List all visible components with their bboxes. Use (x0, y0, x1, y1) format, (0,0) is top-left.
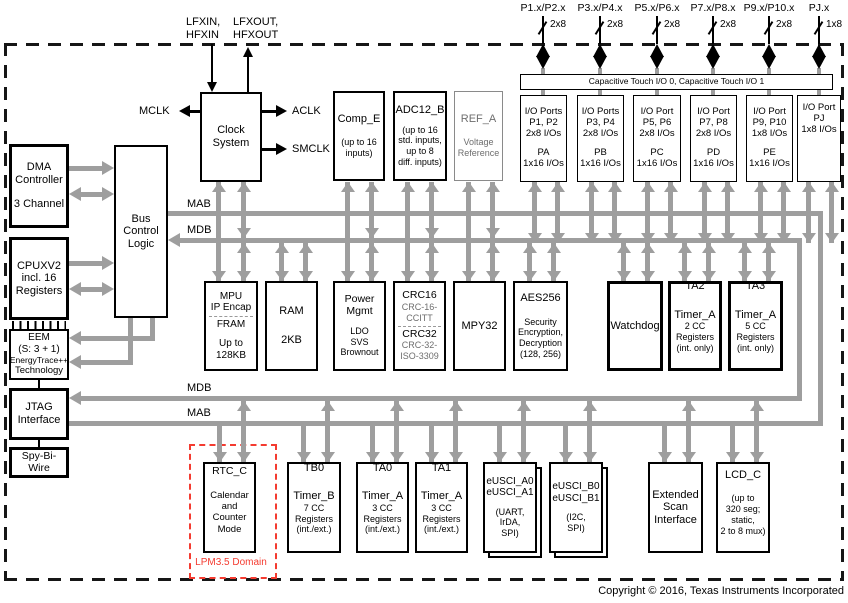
adc-sub1: (up to 16 (402, 125, 438, 136)
bus-arrowhead (237, 243, 251, 253)
lcd-sub2: 320 seg; (726, 504, 761, 515)
ta0-sub3: Registers (363, 514, 401, 525)
lfxin-down-arrowhead (207, 82, 217, 92)
bus-arrowhead (641, 243, 655, 253)
mpu-title: MPU (220, 291, 242, 302)
dma-line1: DMA (27, 161, 51, 174)
eem-feeder1-arrowhead (69, 331, 81, 345)
ref-sub1: Voltage (463, 137, 493, 148)
ram-size: 2KB (281, 334, 302, 347)
rtc-sub3: Counter (213, 512, 247, 523)
block-jtag-interface: JTAG Interface (9, 388, 69, 440)
esi-line1: Extended (652, 489, 698, 502)
block-diagram: MAB MDB MDB MAB P1.x/P2.x 2x8 P3.x/P4.x … (0, 0, 848, 603)
eusci-b-sub2: SPI) (567, 523, 585, 534)
clock-line1: Clock (217, 124, 245, 137)
io5-l3: 1x8 I/Os (801, 125, 836, 136)
block-rtc-c: RTC_C Calendar and Counter Mode (203, 462, 256, 553)
cpu-bus2-arrowhead-left (69, 282, 81, 296)
lpm35-domain-label: LPM3.5 Domain (189, 557, 273, 568)
ta3-sub4: (int. only) (737, 343, 774, 354)
bus-arrowhead (698, 233, 712, 243)
crc32-title: CRC32 (402, 329, 436, 341)
eusci-b1-title: eUSCI_B1 (552, 493, 599, 504)
bus-arrowhead (486, 228, 500, 238)
mpu-ipencap: IP Encap (211, 302, 251, 313)
block-mpu-fram: MPU IP Encap FRAM Up to 128KB (204, 281, 258, 371)
bus-arrowhead (365, 228, 379, 238)
lcd-sub4: 2 to 8 mux) (720, 526, 765, 537)
lfxout-line (247, 57, 249, 92)
rtc-sub1: Calendar (210, 490, 249, 501)
io3-l3: 2x8 I/Os (696, 129, 731, 140)
io2-l5: 1x16 I/Os (637, 159, 678, 170)
bus-arrowhead (237, 271, 251, 281)
aclk-line (262, 110, 277, 113)
block-power-mgmt: Power Mgmt LDO SVS Brownout (333, 281, 386, 371)
block-lcd-c: LCD_C (up to 320 seg; static, 2 to 8 mux… (716, 462, 770, 553)
pmm-sub2: SVS (350, 337, 368, 348)
aes-title: AES256 (520, 292, 560, 305)
esi-line3: Interface (654, 514, 697, 527)
pmm-sub3: Brownout (340, 347, 378, 358)
rtc-sub4: Mode (218, 524, 242, 535)
bus-arrowhead (617, 271, 631, 281)
bus-arrowhead (641, 182, 655, 192)
bus-arrowhead (449, 401, 463, 411)
bus-width-label: 2x8 (720, 19, 736, 30)
bus-arrowhead (802, 233, 816, 243)
block-clock-system: Clock System (200, 92, 262, 182)
clock-line2: System (213, 137, 250, 150)
eusci-b-sub1: (I2C, (566, 512, 586, 523)
ta2-sub2: 2 CC (685, 321, 706, 332)
adc-sub2: std. inputs, (398, 135, 442, 146)
bus-width-label: 2x8 (607, 19, 623, 30)
tb0-sub1: Timer_B (293, 490, 334, 503)
bus-arrowhead (777, 182, 791, 192)
block-mpy32: MPY32 (453, 281, 506, 371)
block-io-p1p2: I/O Ports P1, P2 2x8 I/Os PA 1x16 I/Os (520, 95, 567, 182)
bus-arrowhead (341, 182, 355, 192)
bus-arrowhead (583, 452, 597, 462)
block-bus-control-logic: Bus Control Logic (114, 145, 168, 318)
bus-arrowhead (299, 243, 313, 253)
bus-arrowhead (617, 243, 631, 253)
mpu-fram: FRAM (217, 319, 245, 330)
bus-arrowhead (425, 182, 439, 192)
eusci-a-sub3: SPI) (501, 528, 519, 539)
lcd-title: LCD_C (725, 469, 761, 482)
bus-arrowhead (365, 271, 379, 281)
pmm-sub1: LDO (350, 326, 369, 337)
bus-arrowhead (425, 243, 439, 253)
eem-line3: EnergyTrace++ (10, 355, 68, 365)
bus-arrowhead (726, 452, 740, 462)
bus-arrowhead (425, 228, 439, 238)
mpu-sub2: 128KB (216, 350, 246, 361)
aes-sub4: (128, 256) (520, 349, 561, 360)
crc16-sub2: CCITT (406, 313, 433, 324)
block-crc: CRC16 CRC-16- CCITT CRC32 CRC-32- ISO-33… (393, 281, 446, 371)
bus-arrowhead (641, 271, 655, 281)
mdb-upper-label: MDB (187, 224, 211, 236)
rtc-sub2: and (222, 501, 238, 512)
eusci-a-sub2: IrDA, (500, 517, 521, 528)
lfxin-label-line1: LFXIN, (186, 16, 220, 28)
port-label: PJ.x (787, 2, 848, 14)
ta1-sub3: Registers (422, 514, 460, 525)
mclk-line (189, 110, 200, 113)
bus-arrowhead (551, 233, 565, 243)
ta1-sub2: 3 CC (431, 503, 452, 514)
eem-feeder2-line (81, 360, 133, 365)
block-io-p5p6: I/O Port P5, P6 2x8 I/Os PC 1x16 I/Os (633, 95, 681, 182)
bus-arrowhead (493, 452, 507, 462)
mab-lower-bus (69, 421, 823, 426)
bus-arrowhead (825, 233, 839, 243)
dma-bus2-arrowhead-left (69, 187, 81, 201)
block-ta2: TA2 Timer_A 2 CC Registers (int. only) (668, 281, 722, 371)
port-label: P1.x/P2.x (511, 2, 575, 14)
bus-arrowhead (366, 452, 380, 462)
bus-arrowhead (551, 182, 565, 192)
cpu-eem-hatch (12, 321, 66, 329)
crc32-sub2: ISO-3309 (400, 351, 439, 362)
eusci-b0-title: eUSCI_B0 (552, 481, 599, 492)
ta0-sub1: Timer_A (362, 490, 403, 503)
aclk-arrowhead (276, 105, 287, 117)
bus-arrowhead (449, 452, 463, 462)
bus-arrowhead (275, 271, 289, 281)
bus-arrowhead (321, 452, 335, 462)
block-ta1: TA1 Timer_A 3 CC Registers (int./ext.) (415, 462, 468, 553)
smclk-line (262, 148, 277, 151)
mab-lower-label: MAB (187, 407, 211, 419)
cpu-line3: Registers (16, 285, 62, 298)
sbw-line1: Spy-Bi- (22, 451, 56, 463)
io4-l5: 1x16 I/Os (749, 159, 790, 170)
bus-arrowhead (825, 182, 839, 192)
block-spy-bi-wire: Spy-Bi- Wire (9, 447, 69, 478)
bus-arrowhead (523, 271, 537, 281)
bus-arrowhead (721, 233, 735, 243)
ta1-sub1: Timer_A (421, 490, 462, 503)
port-down-arrowhead (536, 56, 550, 69)
block-comp-e: Comp_E (up to 16 inputs) (333, 91, 385, 181)
mpy-title: MPY32 (461, 320, 497, 333)
lfxin-line (211, 44, 213, 82)
mdb-upper-arrowhead (168, 233, 180, 247)
comp-sub1: (up to 16 (341, 137, 377, 148)
eem-jtag-link (38, 380, 40, 388)
mpu-sub1: Up to (219, 338, 243, 349)
port-down-arrowhead (650, 56, 664, 69)
crc16-title: CRC16 (402, 290, 436, 302)
bus-connector (405, 182, 410, 281)
block-ram: RAM 2KB (265, 281, 318, 371)
ta1-title: TA1 (432, 462, 451, 475)
bus-arrowhead (523, 243, 537, 253)
bus-arrowhead (401, 271, 415, 281)
bus-arrowhead (237, 182, 251, 192)
bus-arrowhead (682, 452, 696, 462)
ta3-title: TA3 (746, 280, 765, 293)
bus-arrowhead (486, 271, 500, 281)
pmm-title1: Power (345, 294, 375, 306)
bus-arrowhead (738, 243, 752, 253)
bus-arrowhead (754, 233, 768, 243)
bus-arrowhead (462, 182, 476, 192)
block-io-p7p8: I/O Port P7, P8 2x8 I/Os PD 1x16 I/Os (690, 95, 737, 182)
dma-line3: 3 Channel (14, 198, 64, 211)
port-label: P7.x/P8.x (681, 2, 745, 14)
bus-arrowhead (462, 271, 476, 281)
bus-arrowhead (664, 182, 678, 192)
cpu-line2: incl. 16 (22, 272, 57, 285)
comp-sub2: inputs) (345, 148, 372, 159)
eusci-a1-title: eUSCI_A1 (486, 487, 533, 498)
bus-arrowhead (401, 182, 415, 192)
lcd-sub3: static, (731, 515, 755, 526)
crc-divider (398, 326, 441, 327)
bus-arrowhead (425, 452, 439, 462)
bus-arrowhead (528, 233, 542, 243)
ta1-sub4: (int./ext.) (424, 524, 459, 535)
crc16-sub1: CRC-16- (402, 302, 438, 313)
io1-l5: 1x16 I/Os (580, 159, 621, 170)
copyright-text: Copyright © 2016, Texas Instruments Inco… (480, 585, 844, 597)
cpu-bus-arrowhead (102, 256, 114, 270)
eem-feeder2-arrowhead (69, 355, 81, 369)
block-cpu: CPUXV2 incl. 16 Registers (9, 237, 69, 320)
tb0-sub3: Registers (295, 514, 333, 525)
bus-arrowhead (702, 243, 716, 253)
bus-arrowhead (299, 271, 313, 281)
wdt-title: Watchdog (610, 320, 659, 333)
ta0-sub2: 3 CC (372, 503, 393, 514)
crc32-sub1: CRC-32- (402, 340, 438, 351)
bus-arrowhead (547, 243, 561, 253)
bus-arrowhead (608, 233, 622, 243)
io3-l5: 1x16 I/Os (693, 159, 734, 170)
block-ta3: TA3 Timer_A 5 CC Registers (int. only) (728, 281, 783, 371)
ta0-title: TA0 (373, 462, 392, 475)
mab-right-vertical (818, 211, 823, 426)
eem-line2: (S: 3 + 1) (18, 344, 59, 355)
bus-arrowhead (750, 401, 764, 411)
mdb-lower-label: MDB (187, 382, 211, 394)
dma-line2: Controller (15, 174, 63, 187)
block-dma-controller: DMA Controller 3 Channel (9, 144, 69, 228)
sbw-line2: Wire (28, 463, 50, 475)
ta2-sub1: Timer_A (674, 309, 715, 322)
jtag-line2: Interface (18, 414, 61, 427)
bus-arrowhead (762, 243, 776, 253)
io1-l3: 2x8 I/Os (583, 129, 618, 140)
bus-arrowhead (237, 452, 251, 462)
bus-connector (345, 182, 350, 281)
bus-arrowhead (517, 452, 531, 462)
chip-border-bottom (4, 578, 842, 581)
bus-arrowhead (213, 452, 227, 462)
bus-arrowhead (486, 182, 500, 192)
bus-arrowhead (698, 182, 712, 192)
mdb-right-vertical (797, 238, 802, 401)
block-eusci-b: eUSCI_B0 eUSCI_B1 (I2C, SPI) (549, 462, 603, 553)
adc-title: ADC12_B (396, 104, 445, 117)
bus-arrowhead (678, 243, 692, 253)
bus-arrowhead (528, 182, 542, 192)
bus-arrowhead (585, 182, 599, 192)
cpu-bus2-arrowhead-right (102, 282, 114, 296)
bus-arrowhead (517, 401, 531, 411)
eem-line1: EEM (28, 332, 50, 343)
io0-l3: 2x8 I/Os (526, 129, 561, 140)
block-aes256: AES256 Security Encryption, Decryption (… (513, 281, 568, 371)
lfxout-up-arrowhead (243, 47, 253, 57)
port-label: P3.x/P4.x (568, 2, 632, 14)
esi-line2: Scan (663, 501, 688, 514)
block-adc12-b: ADC12_B (up to 16 std. inputs, up to 8 d… (393, 91, 447, 181)
bus-arrowhead (777, 233, 791, 243)
ta0-sub4: (int./ext.) (365, 524, 400, 535)
adc-sub4: diff. inputs) (398, 157, 442, 168)
cpu-bus-line (69, 261, 105, 266)
chip-border-left (4, 43, 7, 581)
jtag-line1: JTAG (25, 401, 52, 414)
bus-arrowhead (275, 243, 289, 253)
bus-arrowhead (721, 182, 735, 192)
block-eusci-a: eUSCI_A0 eUSCI_A1 (UART, IrDA, SPI) (483, 462, 537, 553)
bus-ctrl-line2: Control (123, 225, 158, 238)
bus-arrowhead (390, 452, 404, 462)
bus-arrowhead (212, 182, 226, 192)
bus-arrowhead (585, 233, 599, 243)
port-down-arrowhead (593, 56, 607, 69)
bus-arrowhead (682, 401, 696, 411)
cap-touch-label: Capacitive Touch I/O 0, Capacitive Touch… (589, 77, 764, 87)
eusci-a0-title: eUSCI_A0 (486, 476, 533, 487)
aes-sub2: Encryption, (518, 327, 563, 338)
port-down-arrowhead (762, 56, 776, 69)
block-ta0: TA0 Timer_A 3 CC Registers (int./ext.) (356, 462, 409, 553)
eem-line4: Technology (15, 365, 63, 376)
ta3-sub2: 5 CC (745, 321, 766, 332)
mab-upper-label: MAB (187, 198, 211, 210)
bus-arrowhead (390, 401, 404, 411)
comp-title: Comp_E (338, 113, 381, 126)
bus-arrowhead (658, 452, 672, 462)
bus-arrowhead (750, 452, 764, 462)
ram-title: RAM (279, 305, 303, 318)
bus-arrowhead (297, 452, 311, 462)
bus-arrowhead (754, 182, 768, 192)
cpu-line1: CPUXV2 (17, 260, 61, 273)
bus-arrowhead (341, 271, 355, 281)
io0-l5: 1x16 I/Os (523, 159, 564, 170)
dma-bus-line (69, 166, 105, 171)
bus-width-label: 1x8 (826, 19, 842, 30)
lcd-sub1: (up to (731, 493, 754, 504)
adc-sub3: up to 8 (406, 146, 434, 157)
bus-arrowhead (237, 401, 251, 411)
tb0-title: TB0 (304, 462, 324, 475)
lfxin-label-line2: HFXIN (186, 29, 219, 41)
bus-arrowhead (641, 233, 655, 243)
block-io-p9p10: I/O Port P9, P10 1x8 I/Os PE 1x16 I/Os (746, 95, 793, 182)
eem-feeder1-line (81, 336, 153, 341)
lfxout-label-line2: HFXOUT (233, 29, 278, 41)
bus-width-label: 2x8 (550, 19, 566, 30)
ta3-sub1: Timer_A (735, 309, 776, 322)
tb0-sub4: (int./ext.) (296, 524, 331, 535)
bus-arrowhead (547, 271, 561, 281)
bus-arrowhead (583, 401, 597, 411)
bus-arrowhead (212, 271, 226, 281)
jtag-sbw-link (38, 440, 40, 447)
block-eem: EEM (S: 3 + 1) EnergyTrace++ Technology (9, 329, 69, 380)
ref-title: REF_A (461, 113, 496, 126)
port-label: P5.x/P6.x (625, 2, 689, 14)
ta3-sub3: Registers (736, 332, 774, 343)
bus-ctrl-line3: Logic (128, 238, 154, 251)
aclk-label: ACLK (292, 105, 321, 117)
bus-arrowhead (608, 182, 622, 192)
ta2-sub3: Registers (676, 332, 714, 343)
bus-arrowhead (321, 401, 335, 411)
tb0-sub2: 7 CC (304, 503, 325, 514)
dma-bus2-arrowhead-right (102, 187, 114, 201)
chip-border-right (841, 43, 844, 581)
ref-sub2: Reference (458, 148, 500, 159)
bus-connector (216, 182, 221, 281)
block-ref-a: REF_A Voltage Reference (454, 91, 503, 181)
io4-l3: 1x8 I/Os (752, 129, 787, 140)
bus-arrowhead (486, 243, 500, 253)
block-io-p3p4: I/O Ports P3, P4 2x8 I/Os PB 1x16 I/Os (577, 95, 624, 182)
bus-arrowhead (664, 233, 678, 243)
smclk-label: SMCLK (292, 143, 330, 155)
eem-feeder2-vertical (128, 318, 133, 365)
block-extended-scan-interface: Extended Scan Interface (648, 462, 703, 553)
aes-sub1: Security (524, 317, 557, 328)
bus-arrowhead (237, 228, 251, 238)
port-down-arrowhead (706, 56, 720, 69)
mdb-lower-arrowhead (69, 391, 81, 405)
rtc-title: RTC_C (212, 466, 247, 478)
ta2-title: TA2 (685, 280, 704, 293)
bus-arrowhead (802, 182, 816, 192)
block-tb0: TB0 Timer_B 7 CC Registers (int./ext.) (287, 462, 341, 553)
ta2-sub4: (int. only) (676, 343, 713, 354)
mpu-divider (209, 316, 253, 317)
dma-bus-arrowhead (102, 161, 114, 175)
block-watchdog: Watchdog (607, 281, 663, 371)
mclk-label: MCLK (139, 105, 170, 117)
lfxout-label-line1: LFXOUT, (233, 16, 278, 28)
bus-arrowhead (559, 452, 573, 462)
block-cap-touch: Capacitive Touch I/O 0, Capacitive Touch… (520, 74, 833, 90)
bus-ctrl-line1: Bus (132, 213, 151, 226)
bus-arrowhead (365, 182, 379, 192)
aes-sub3: Decryption (519, 338, 562, 349)
smclk-arrowhead (276, 143, 287, 155)
port-down-arrowhead (812, 56, 826, 69)
block-io-pj: I/O Port PJ 1x8 I/Os (797, 95, 841, 182)
io2-l3: 2x8 I/Os (639, 129, 674, 140)
bus-arrowhead (425, 271, 439, 281)
